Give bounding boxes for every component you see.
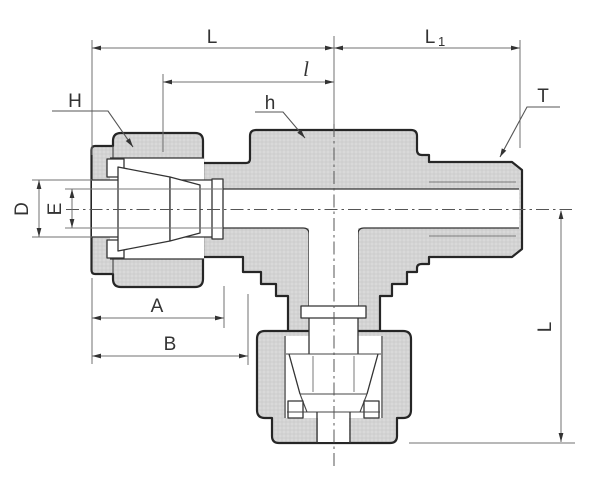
dim-label-l: l <box>303 57 309 81</box>
run-bore <box>223 189 519 228</box>
dim-label-h: h <box>265 93 276 114</box>
dim-label-L1-sub: 1 <box>438 34 445 49</box>
dim-label-T: T <box>537 86 549 107</box>
dimension-D: D <box>12 180 41 237</box>
dim-label-H: H <box>68 91 82 112</box>
dim-label-L1: L <box>425 27 436 48</box>
fitting-drawing: L L 1 l H h <box>0 0 603 485</box>
dim-label-L-side: L <box>535 322 556 333</box>
left-nut <box>92 133 224 287</box>
branch-back-ferrule-right <box>364 401 379 418</box>
dim-label-A: A <box>151 296 164 317</box>
dimension-A: A <box>92 296 224 320</box>
dim-label-D: D <box>12 202 33 216</box>
dimension-l-inner: l <box>163 57 334 84</box>
dim-label-L-top: L <box>207 27 218 48</box>
dim-label-E: E <box>45 203 66 216</box>
dimension-E: E <box>45 189 74 228</box>
dimension-B: B <box>92 334 248 358</box>
dimension-L-side: L <box>535 210 563 442</box>
dimension-L1: L 1 <box>334 27 520 50</box>
dim-label-B: B <box>164 334 177 355</box>
label-T: T <box>500 86 560 157</box>
drawing-canvas: L L 1 l H h <box>0 0 603 485</box>
branch-back-ferrule-left <box>288 401 303 418</box>
dimension-L-top: L <box>92 27 334 50</box>
